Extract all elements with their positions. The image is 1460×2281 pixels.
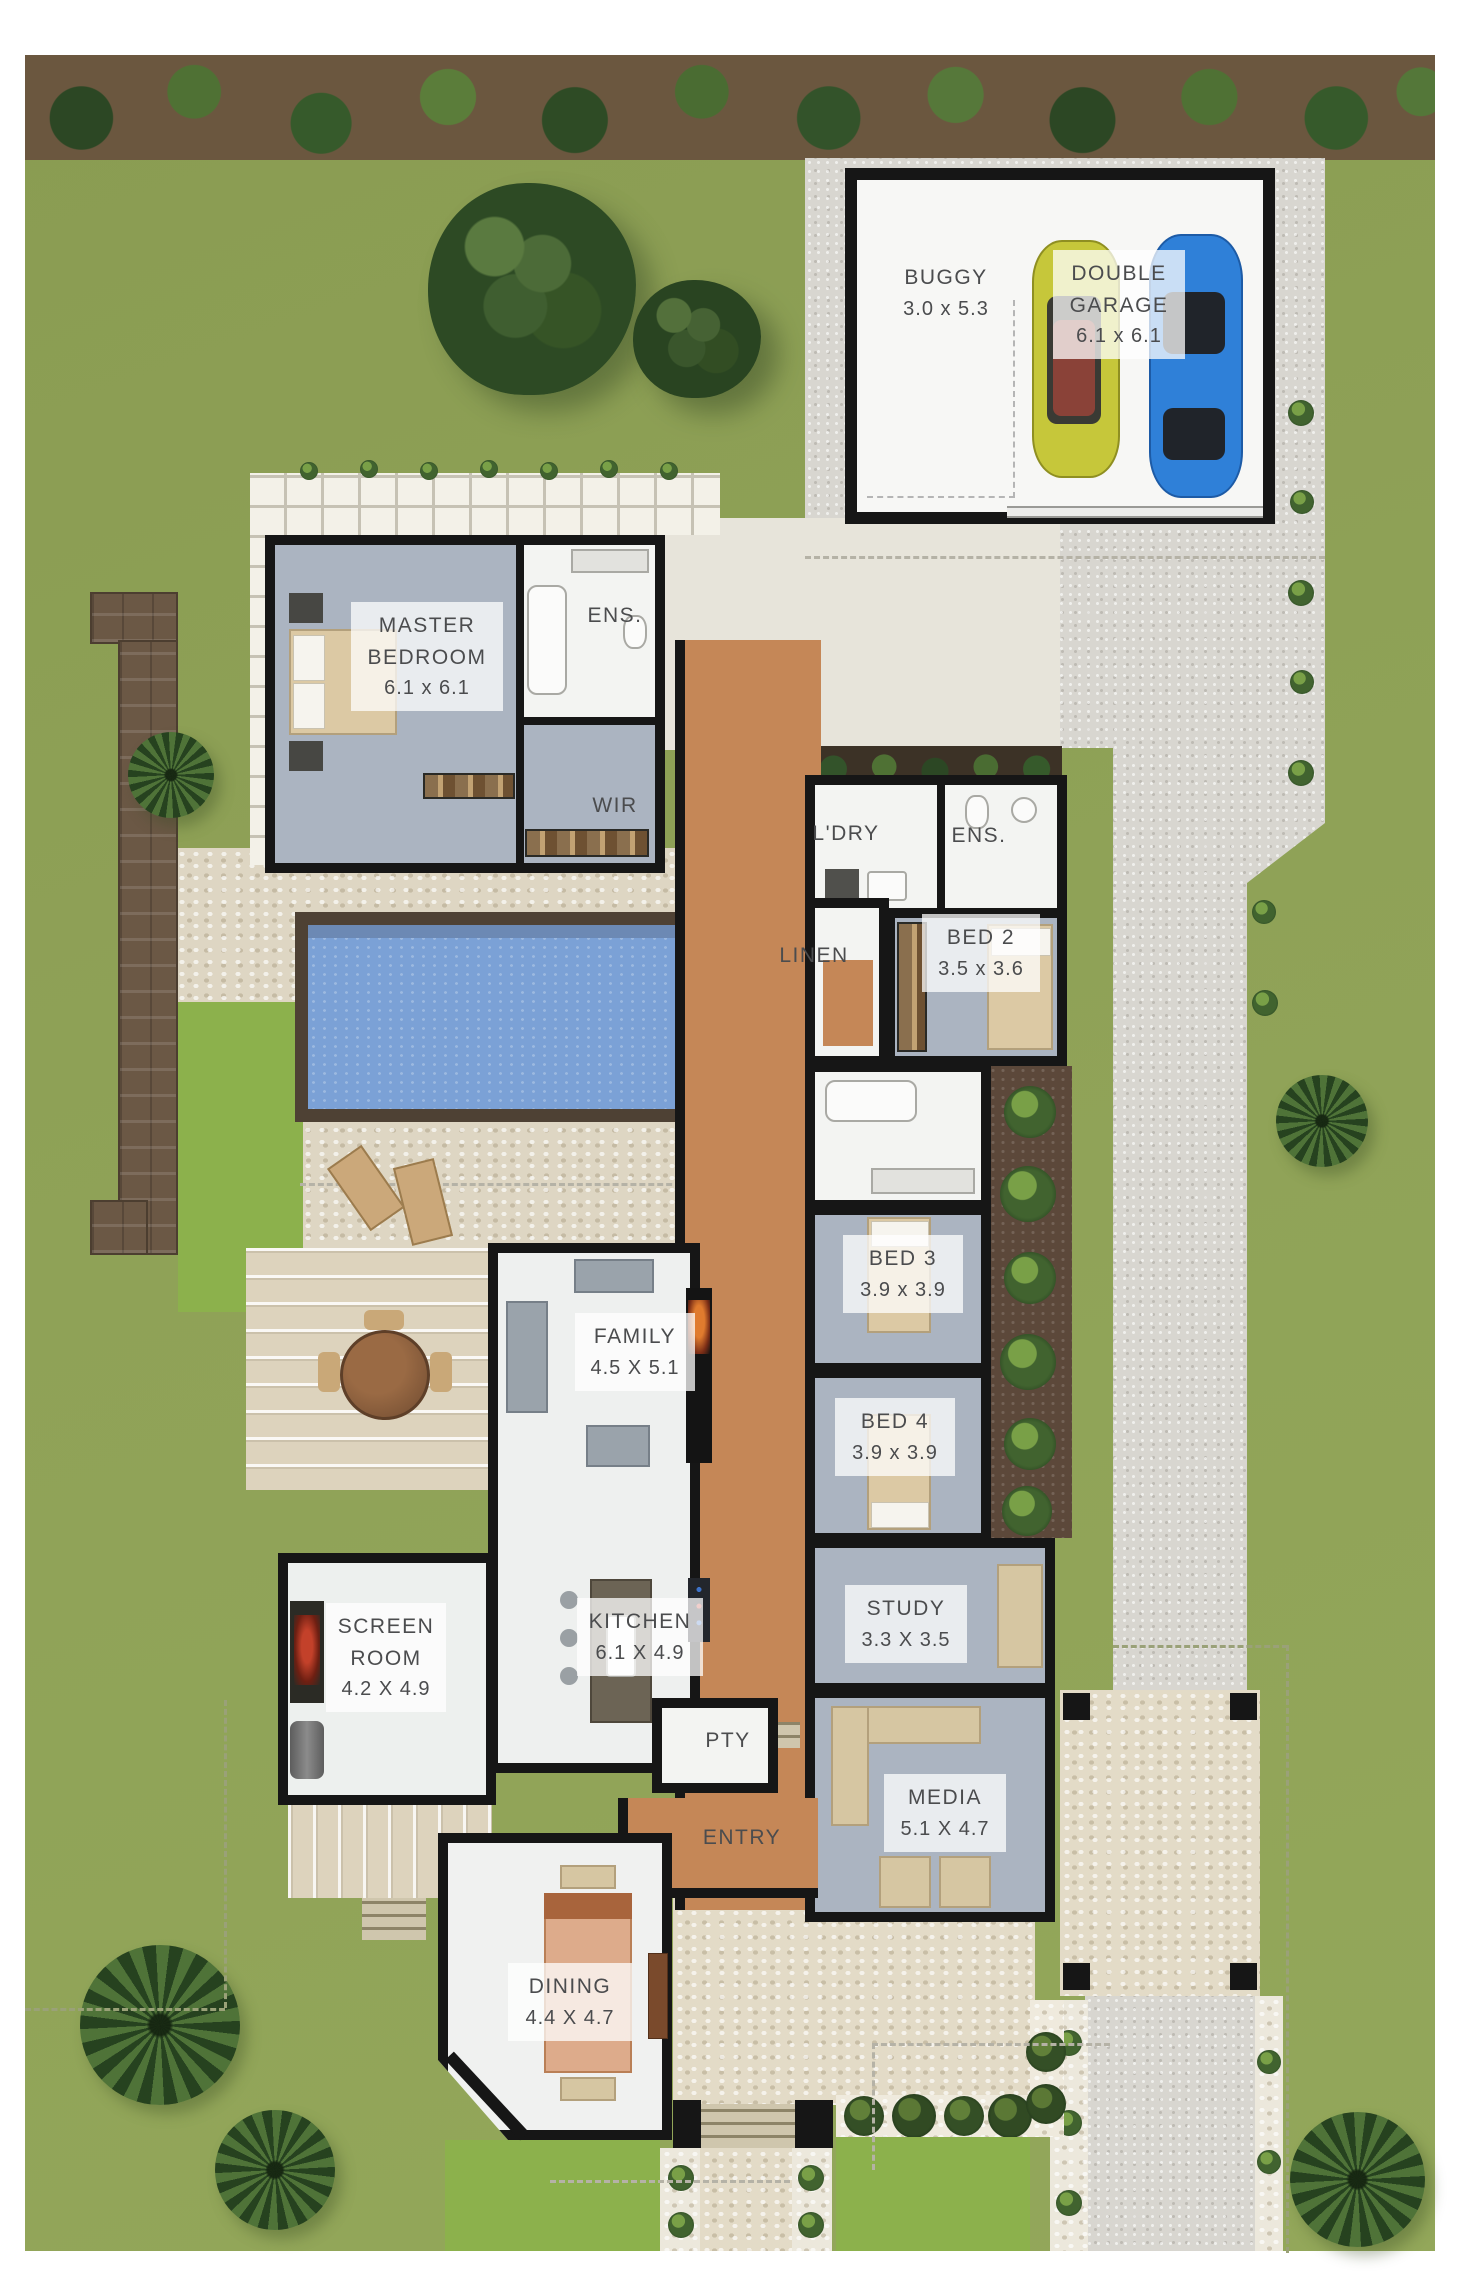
room-label-family: FAMILY 4.5 X 5.1 bbox=[575, 1313, 695, 1391]
pillow bbox=[293, 683, 325, 729]
room-bathroom bbox=[805, 1062, 991, 1210]
outdoor-chair bbox=[364, 1310, 404, 1330]
palm-tree bbox=[1276, 1075, 1368, 1167]
shrub bbox=[1252, 900, 1276, 924]
swimming-pool bbox=[295, 912, 700, 1122]
nightstand bbox=[289, 741, 323, 771]
room-name: WIR bbox=[584, 790, 646, 822]
front-porch bbox=[1060, 1690, 1260, 1996]
hedge-strip bbox=[25, 55, 1435, 160]
room-label-dining: DINING 4.4 X 4.7 bbox=[508, 1963, 632, 2041]
setback-dashed-line bbox=[25, 2008, 225, 2011]
palm-shrub bbox=[1004, 1086, 1056, 1138]
shrub bbox=[1257, 2050, 1281, 2074]
room-name: BED 3 bbox=[847, 1243, 959, 1275]
palm-shrub bbox=[1026, 2032, 1066, 2072]
room-label-study: STUDY 3.3 X 3.5 bbox=[845, 1585, 967, 1663]
room-label-bed4: BED 4 3.9 x 3.9 bbox=[835, 1398, 955, 1476]
front-terrace bbox=[673, 1895, 1035, 2105]
room-name: DINING bbox=[512, 1971, 628, 2003]
setback-dashed-line bbox=[1286, 1645, 1289, 2253]
pillow bbox=[871, 1502, 929, 1528]
driveway-south bbox=[1085, 1996, 1257, 2251]
garage-door bbox=[1007, 506, 1263, 518]
medium-tree bbox=[633, 280, 761, 398]
shrub bbox=[660, 462, 678, 480]
room-dims: 4.2 X 4.9 bbox=[330, 1674, 442, 1704]
paver-path-arm bbox=[90, 592, 178, 644]
lawn-patch-bright bbox=[445, 2140, 660, 2251]
outdoor-table bbox=[340, 1330, 430, 1420]
shrub bbox=[1288, 400, 1314, 426]
garage-bay-dashed bbox=[1013, 300, 1015, 498]
shrub bbox=[480, 460, 498, 478]
shrub bbox=[360, 460, 378, 478]
room-label-bed3: BED 3 3.9 x 3.9 bbox=[843, 1235, 963, 1313]
paver-path-foot bbox=[90, 1200, 148, 1255]
setback-dashed-line bbox=[550, 2180, 790, 2183]
room-name: MASTER BEDROOM bbox=[355, 610, 499, 673]
garage-apron-dashed-line bbox=[805, 556, 1325, 559]
sofa bbox=[574, 1259, 654, 1293]
palm-shrub bbox=[844, 2096, 884, 2136]
room-name: BED 4 bbox=[839, 1406, 951, 1438]
room-name: DOUBLE GARAGE bbox=[1057, 258, 1181, 321]
nightstand bbox=[289, 593, 323, 623]
bathtub bbox=[527, 585, 567, 695]
palm-shrub bbox=[944, 2096, 984, 2136]
basin bbox=[1011, 797, 1037, 823]
outdoor-chair bbox=[430, 1352, 452, 1392]
pillow bbox=[293, 635, 325, 681]
room-label-buggy: BUGGY 3.0 x 5.3 bbox=[884, 262, 1008, 324]
laundry-trough bbox=[867, 871, 907, 901]
wardrobe bbox=[525, 829, 649, 857]
room-dims: 6.1 X 4.9 bbox=[581, 1638, 699, 1668]
room-name: ENS. bbox=[944, 820, 1014, 852]
room-name: MEDIA bbox=[888, 1782, 1002, 1814]
room-label-wir: WIR bbox=[584, 790, 646, 822]
setback-dashed-line bbox=[224, 1700, 227, 2008]
floor-plan-canvas: BUGGY 3.0 x 5.3 DOUBLE GARAGE 6.1 x 6.1 … bbox=[0, 0, 1460, 2281]
linen-floor bbox=[823, 960, 873, 1046]
room-name: KITCHEN bbox=[581, 1606, 699, 1638]
room-name: SCREEN ROOM bbox=[330, 1611, 442, 1674]
palm-shrub bbox=[892, 2094, 936, 2138]
room-label-ensuite-bed2: ENS. bbox=[944, 820, 1014, 852]
room-label-bed2: BED 2 3.5 x 3.6 bbox=[922, 914, 1040, 992]
room-label-laundry: L'DRY bbox=[808, 818, 884, 850]
shrub bbox=[1288, 580, 1314, 606]
room-name: PTY bbox=[700, 1725, 756, 1757]
shrub bbox=[1257, 2150, 1281, 2174]
shrub bbox=[1056, 2190, 1082, 2216]
dining-chair bbox=[560, 1865, 616, 1889]
palm-tree bbox=[128, 732, 214, 818]
porch-column bbox=[1063, 1693, 1090, 1720]
palm-shrub bbox=[1026, 2084, 1066, 2124]
room-name: FAMILY bbox=[579, 1321, 691, 1353]
large-tree bbox=[428, 183, 636, 395]
dining-chair bbox=[560, 2077, 616, 2101]
room-dims: 3.5 x 3.6 bbox=[926, 954, 1036, 984]
shrub bbox=[300, 462, 318, 480]
terrace-step-pier bbox=[795, 2100, 833, 2148]
shrub bbox=[600, 460, 618, 478]
tv-unit bbox=[586, 1425, 650, 1467]
room-dims: 3.3 X 3.5 bbox=[849, 1625, 963, 1655]
shrub bbox=[668, 2212, 694, 2238]
porch-column bbox=[1063, 1963, 1090, 1990]
pool-coping bbox=[308, 925, 687, 938]
vanity bbox=[571, 549, 649, 573]
shrub bbox=[798, 2165, 824, 2191]
shrub bbox=[420, 462, 438, 480]
palm-shrub bbox=[1000, 1166, 1056, 1222]
shrub bbox=[1290, 670, 1314, 694]
room-name: L'DRY bbox=[808, 818, 884, 850]
terrace-step-pier bbox=[673, 2100, 701, 2148]
recliner bbox=[879, 1856, 931, 1908]
setback-dashed-line bbox=[872, 2043, 875, 2170]
room-label-media: MEDIA 5.1 X 4.7 bbox=[884, 1774, 1006, 1852]
wardrobe bbox=[423, 773, 515, 799]
room-dims: 3.9 x 3.9 bbox=[839, 1438, 951, 1468]
entry-walkway bbox=[700, 2148, 792, 2251]
fireplace-flame bbox=[294, 1615, 320, 1685]
outdoor-chair bbox=[318, 1352, 340, 1392]
sofa-l-side bbox=[831, 1706, 869, 1826]
shrub bbox=[1290, 490, 1314, 514]
bar-stool bbox=[560, 1629, 578, 1647]
palm-tree bbox=[215, 2110, 335, 2230]
shrub bbox=[798, 2212, 824, 2238]
bathtub bbox=[825, 1080, 917, 1122]
stepping-pavers bbox=[250, 473, 720, 535]
room-name: ENS. bbox=[580, 600, 650, 632]
setback-dashed-line bbox=[1113, 1645, 1288, 1648]
bar-stool bbox=[560, 1667, 578, 1685]
room-name: BED 2 bbox=[926, 922, 1036, 954]
room-dims: 3.0 x 5.3 bbox=[884, 294, 1008, 324]
terrace-steps bbox=[701, 2104, 795, 2148]
lawn-patch-bright bbox=[836, 2137, 1030, 2251]
room-dims: 4.4 X 4.7 bbox=[512, 2003, 628, 2033]
recliner bbox=[939, 1856, 991, 1908]
room-linen bbox=[805, 898, 889, 1066]
deck-steps bbox=[362, 1898, 426, 1940]
room-label-master-bedroom: MASTER BEDROOM 6.1 x 6.1 bbox=[351, 602, 503, 711]
room-label-kitchen: KITCHEN 6.1 X 4.9 bbox=[577, 1598, 703, 1676]
shrub bbox=[540, 462, 558, 480]
porch-column bbox=[1230, 1693, 1257, 1720]
buffet-cabinet bbox=[648, 1953, 668, 2039]
room-label-entry: ENTRY bbox=[702, 1822, 782, 1854]
room-dims: 4.5 X 5.1 bbox=[579, 1353, 691, 1383]
porch-column bbox=[1230, 1963, 1257, 1990]
palm-tree bbox=[1290, 2112, 1425, 2247]
palm-shrub bbox=[1000, 1334, 1056, 1390]
room-dims: 5.1 X 4.7 bbox=[888, 1814, 1002, 1844]
room-name: BUGGY bbox=[884, 262, 1008, 294]
sofa bbox=[506, 1301, 548, 1413]
room-dims: 6.1 x 6.1 bbox=[1057, 321, 1181, 351]
vanity bbox=[871, 1168, 975, 1194]
palm-tree bbox=[80, 1945, 240, 2105]
room-dims: 3.9 x 3.9 bbox=[847, 1275, 959, 1305]
room-label-double-garage: DOUBLE GARAGE 6.1 x 6.1 bbox=[1053, 250, 1185, 359]
room-label-ensuite-master: ENS. bbox=[580, 600, 650, 632]
room-name: STUDY bbox=[849, 1593, 963, 1625]
room-label-linen: LINEN bbox=[774, 940, 854, 972]
pebble-bed bbox=[1255, 1996, 1283, 2251]
room-name: LINEN bbox=[774, 940, 854, 972]
setback-dashed-line bbox=[872, 2043, 1110, 2046]
shrub bbox=[1288, 760, 1314, 786]
room-label-pantry: PTY bbox=[700, 1725, 756, 1757]
palm-shrub bbox=[1004, 1252, 1056, 1304]
garage-bay-dashed bbox=[867, 496, 1015, 498]
desk bbox=[997, 1564, 1043, 1668]
washing-machine bbox=[825, 869, 859, 901]
log-store bbox=[290, 1721, 324, 1779]
table-runner bbox=[544, 1893, 632, 1919]
shrub bbox=[668, 2165, 694, 2191]
room-label-screen-room: SCREEN ROOM 4.2 X 4.9 bbox=[326, 1603, 446, 1712]
shrub bbox=[1252, 990, 1278, 1016]
car-blue-rear-window bbox=[1163, 408, 1225, 460]
palm-shrub bbox=[1004, 1418, 1056, 1470]
bar-stool bbox=[560, 1591, 578, 1609]
palm-shrub bbox=[1002, 1486, 1052, 1536]
room-dims: 6.1 x 6.1 bbox=[355, 673, 499, 703]
room-name: ENTRY bbox=[702, 1822, 782, 1854]
